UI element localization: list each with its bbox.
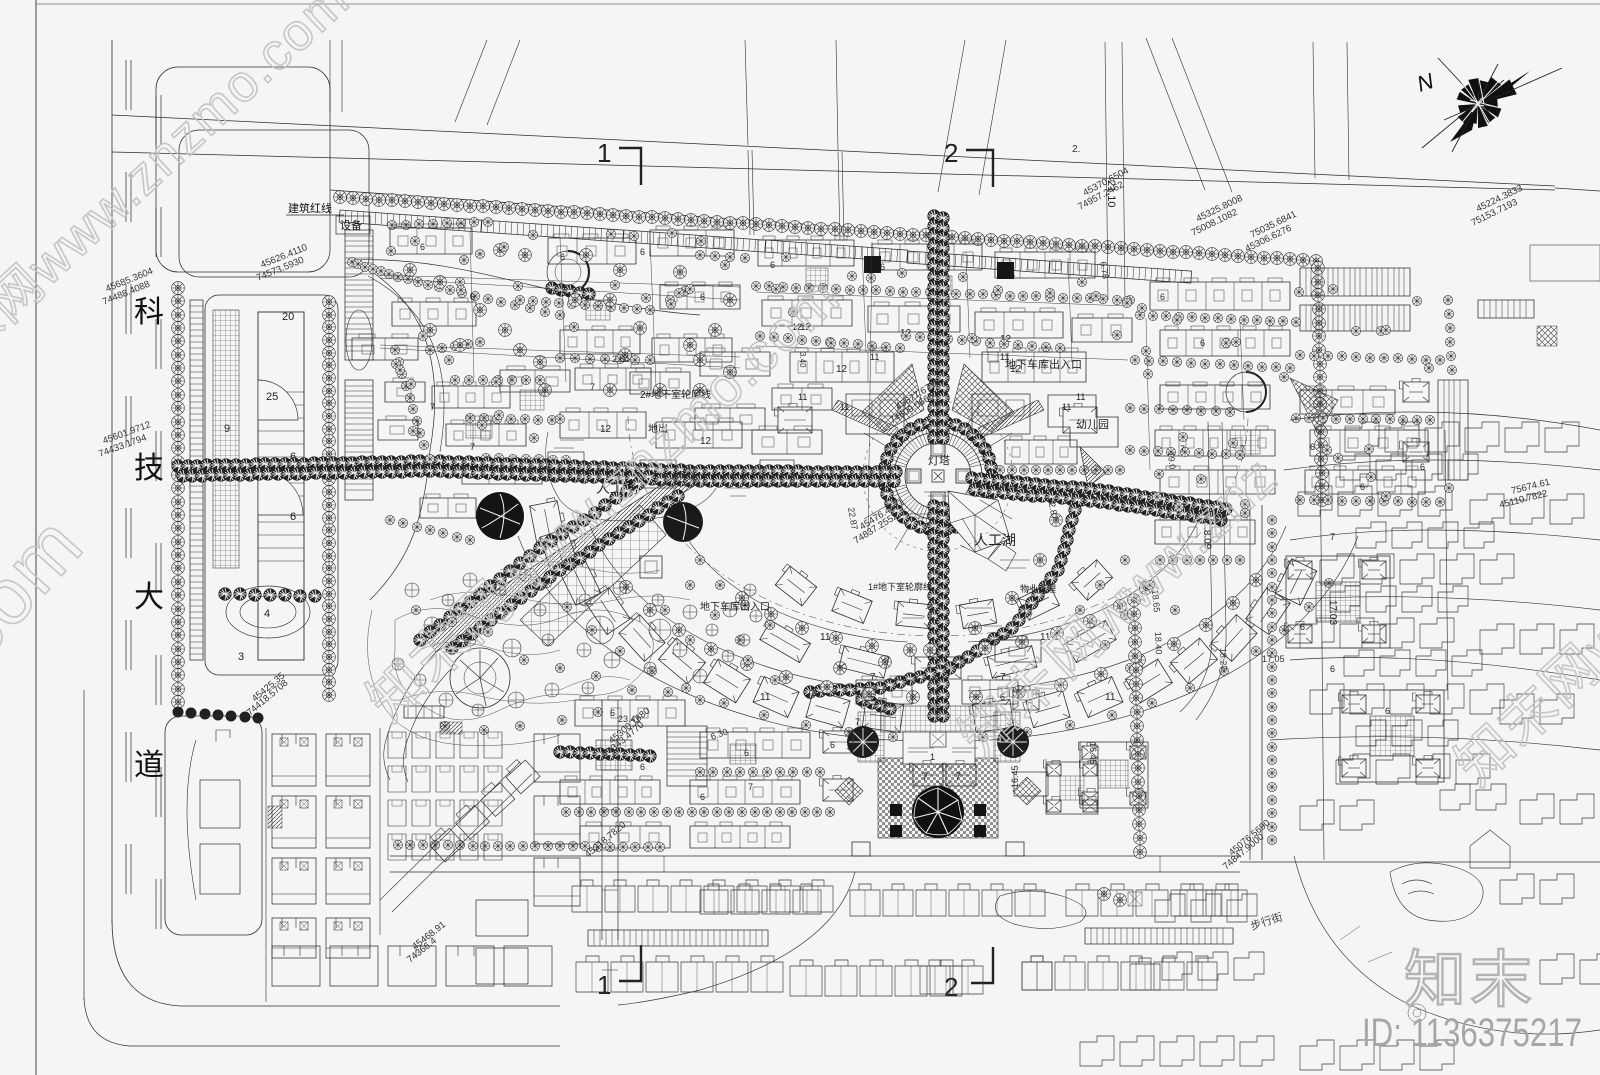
svg-text:18.27: 18.27 bbox=[1218, 648, 1229, 671]
svg-text:6: 6 bbox=[700, 292, 705, 302]
svg-text:7: 7 bbox=[748, 782, 753, 792]
svg-text:7: 7 bbox=[955, 771, 961, 783]
svg-text:2.84: 2.84 bbox=[612, 354, 630, 364]
svg-text:1#地下室轮廓线: 1#地下室轮廓线 bbox=[868, 581, 932, 592]
svg-text:11: 11 bbox=[840, 402, 849, 412]
svg-text:11: 11 bbox=[1062, 402, 1071, 412]
svg-text:12: 12 bbox=[836, 364, 848, 375]
svg-text:12: 12 bbox=[600, 424, 612, 435]
svg-text:6: 6 bbox=[1300, 622, 1305, 632]
svg-text:20: 20 bbox=[282, 311, 294, 323]
svg-text:6: 6 bbox=[420, 242, 425, 252]
svg-text:3: 3 bbox=[238, 651, 244, 663]
svg-text:7: 7 bbox=[430, 402, 435, 412]
svg-text:1: 1 bbox=[597, 138, 611, 168]
svg-text:7: 7 bbox=[470, 442, 475, 452]
svg-text:6: 6 bbox=[1010, 270, 1015, 280]
svg-text:6: 6 bbox=[770, 260, 775, 270]
svg-text:6: 6 bbox=[470, 292, 475, 302]
svg-text:6: 6 bbox=[290, 511, 296, 523]
svg-text:7: 7 bbox=[870, 672, 876, 683]
svg-text:人工湖: 人工湖 bbox=[974, 532, 1016, 548]
svg-text:6: 6 bbox=[1360, 482, 1365, 492]
svg-text:6: 6 bbox=[1330, 664, 1335, 674]
svg-text:9: 9 bbox=[224, 423, 230, 435]
svg-text:16.45: 16.45 bbox=[1010, 765, 1020, 788]
svg-text:6: 6 bbox=[640, 247, 645, 257]
svg-text:12: 12 bbox=[1010, 364, 1022, 375]
svg-text:1: 1 bbox=[597, 970, 611, 1000]
svg-text:科: 科 bbox=[134, 296, 164, 329]
svg-text:6: 6 bbox=[1160, 292, 1165, 302]
svg-text:2: 2 bbox=[944, 138, 958, 168]
svg-text:7: 7 bbox=[1180, 444, 1185, 454]
svg-text:11: 11 bbox=[1105, 692, 1116, 703]
svg-text:11: 11 bbox=[760, 692, 771, 703]
svg-text:道: 道 bbox=[134, 749, 164, 782]
svg-text:23.41: 23.41 bbox=[618, 714, 641, 724]
svg-text:6: 6 bbox=[1420, 462, 1425, 472]
svg-text:11: 11 bbox=[870, 352, 879, 362]
svg-text:2.: 2. bbox=[1072, 144, 1080, 155]
svg-text:17.05: 17.05 bbox=[1262, 654, 1285, 664]
svg-text:19.0: 19.0 bbox=[1166, 451, 1177, 469]
svg-text:11: 11 bbox=[820, 632, 831, 643]
svg-text:6: 6 bbox=[560, 252, 565, 262]
svg-text:18.40: 18.40 bbox=[1153, 632, 1164, 655]
svg-text:物业管理: 物业管理 bbox=[1020, 583, 1056, 594]
svg-text:7: 7 bbox=[922, 771, 928, 783]
svg-text:6: 6 bbox=[610, 708, 615, 718]
svg-text:ID: 1136375217: ID: 1136375217 bbox=[1362, 1011, 1582, 1055]
svg-text:6: 6 bbox=[1200, 338, 1205, 348]
svg-text:11: 11 bbox=[1000, 352, 1009, 362]
svg-text:6: 6 bbox=[870, 692, 875, 702]
svg-text:11: 11 bbox=[798, 392, 807, 402]
svg-text:25: 25 bbox=[266, 391, 278, 403]
svg-text:6: 6 bbox=[1310, 442, 1315, 452]
svg-text:1: 1 bbox=[930, 752, 935, 762]
svg-text:6: 6 bbox=[744, 748, 749, 758]
svg-text:4: 4 bbox=[264, 608, 270, 620]
svg-text:灯塔: 灯塔 bbox=[928, 454, 950, 467]
svg-text:6: 6 bbox=[880, 262, 885, 272]
svg-text:建筑红线: 建筑红线 bbox=[288, 201, 332, 215]
svg-text:6: 6 bbox=[640, 762, 645, 772]
svg-text:设备: 设备 bbox=[340, 218, 362, 232]
svg-text:6: 6 bbox=[1385, 706, 1390, 716]
svg-text:知末: 知末 bbox=[1404, 946, 1536, 1015]
svg-text:7: 7 bbox=[590, 382, 595, 392]
svg-text:大: 大 bbox=[134, 581, 164, 614]
svg-text:16.45: 16.45 bbox=[1088, 742, 1098, 765]
svg-text:技: 技 bbox=[134, 452, 164, 485]
svg-text:17.03: 17.03 bbox=[1327, 600, 1338, 625]
svg-text:6: 6 bbox=[830, 740, 835, 750]
svg-text:地下车库出入口: 地下车库出入口 bbox=[700, 600, 770, 613]
svg-text:11: 11 bbox=[1076, 392, 1085, 402]
svg-text:7: 7 bbox=[1330, 532, 1335, 542]
svg-text:7: 7 bbox=[855, 717, 860, 727]
svg-text:6: 6 bbox=[700, 792, 705, 802]
